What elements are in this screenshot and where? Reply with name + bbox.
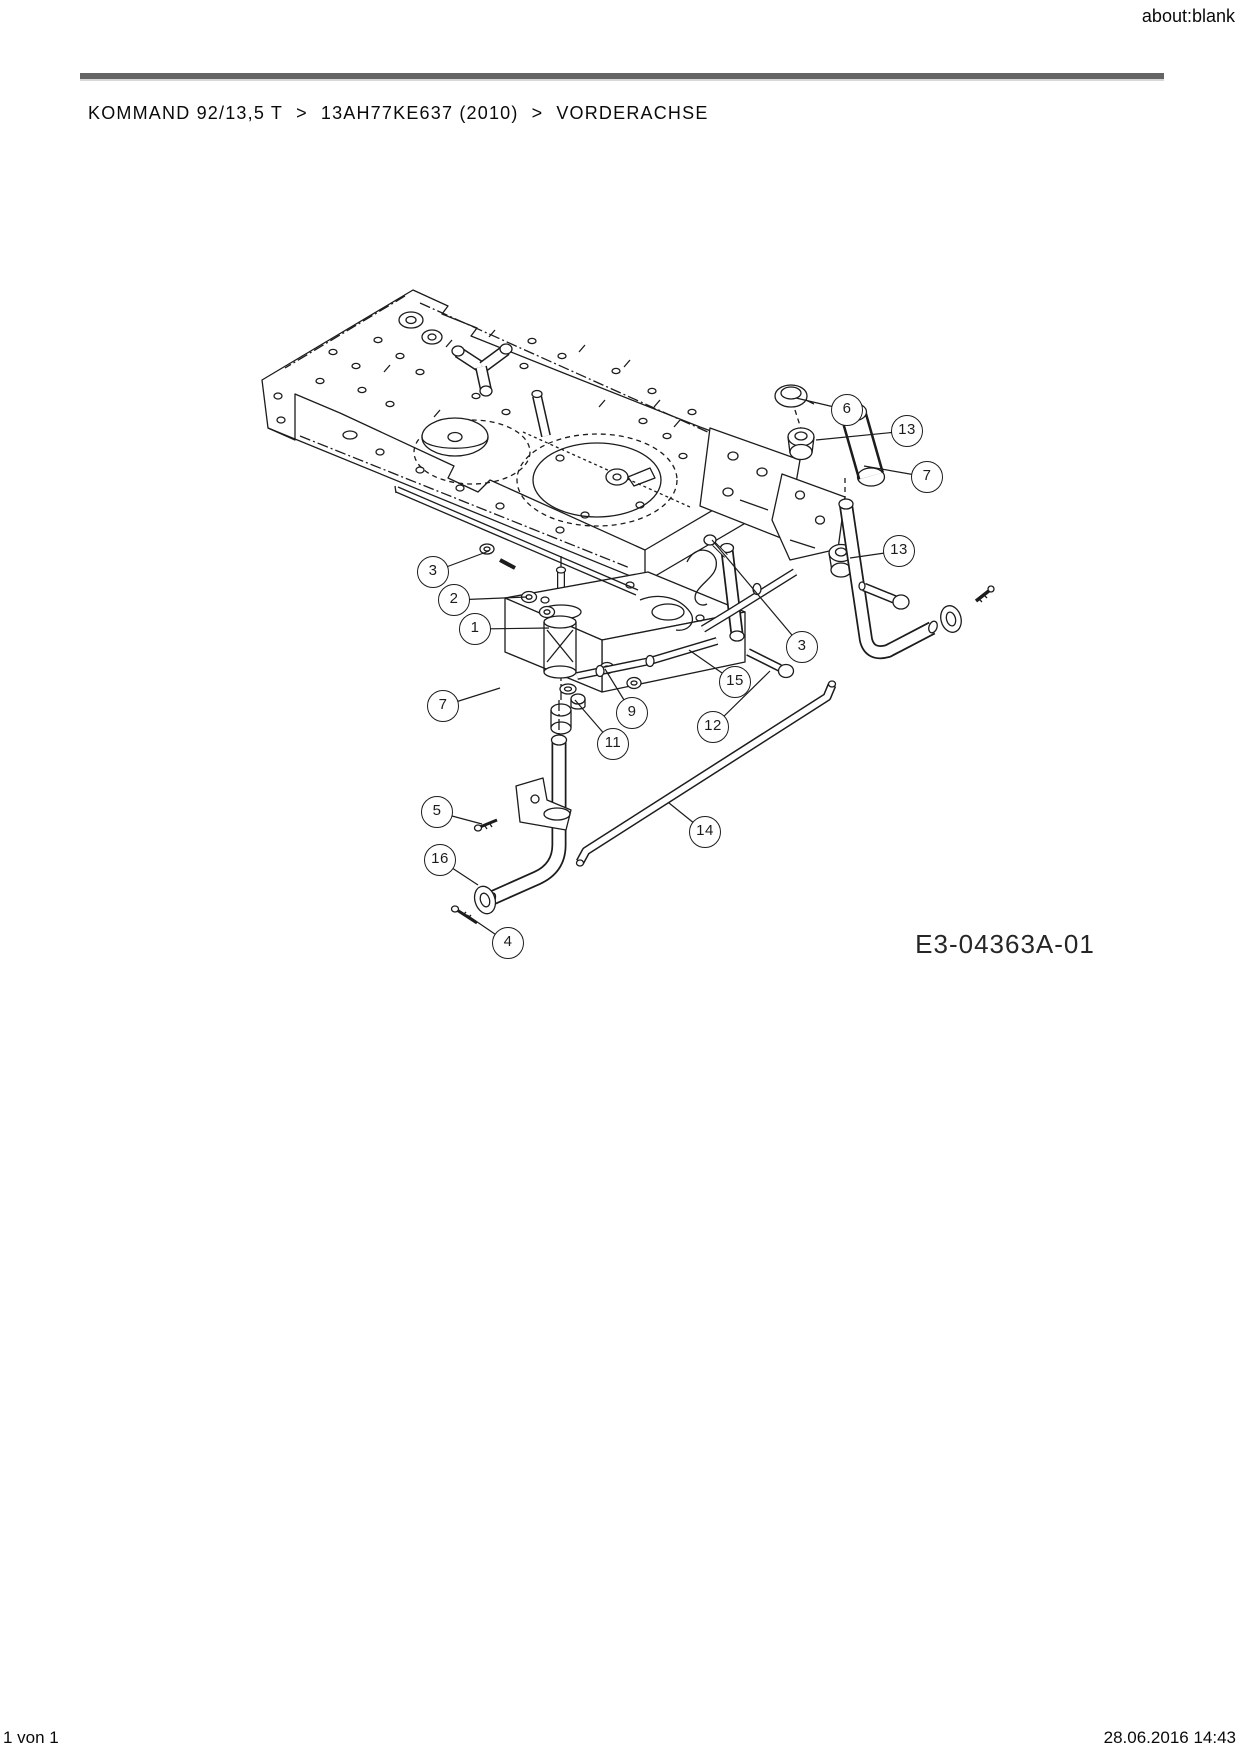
callout-7: 7: [427, 690, 459, 722]
callout-9: 9: [616, 697, 648, 729]
callout-5: 5: [421, 796, 453, 828]
frame-plate: [262, 290, 800, 582]
callout-14: 14: [689, 816, 721, 848]
parts-diagram: 123345677911121313141516 E3-04363A-01: [0, 0, 1240, 1754]
callout-15: 15: [719, 666, 751, 698]
callout-4: 4: [492, 927, 524, 959]
footer-page-count: 1 von 1: [3, 1728, 59, 1748]
callout-7: 7: [911, 461, 943, 493]
exploded-diagram-art: [0, 0, 1240, 1754]
callout-16: 16: [424, 844, 456, 876]
footer-timestamp: 28.06.2016 14:43: [1104, 1728, 1236, 1748]
callout-3: 3: [417, 556, 449, 588]
callout-12: 12: [697, 711, 729, 743]
callout-2: 2: [438, 584, 470, 616]
callout-11: 11: [597, 728, 629, 760]
callout-1: 1: [459, 613, 491, 645]
callout-6: 6: [831, 394, 863, 426]
callout-13: 13: [883, 535, 915, 567]
callout-3: 3: [786, 631, 818, 663]
drawing-number: E3-04363A-01: [905, 929, 1105, 960]
kingpin-assembly: [772, 385, 994, 655]
callout-13: 13: [891, 415, 923, 447]
